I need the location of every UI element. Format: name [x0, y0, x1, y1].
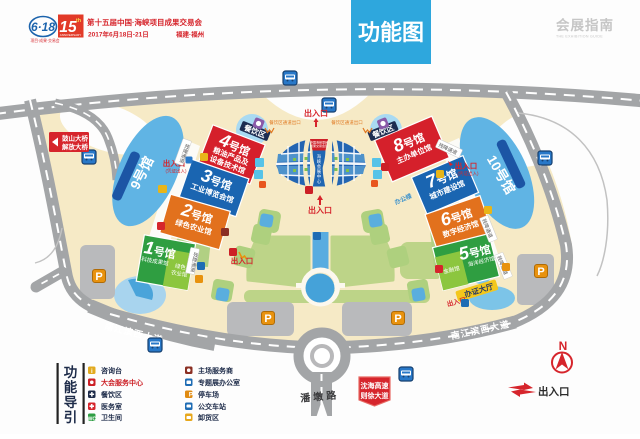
- svg-text:心: 心: [317, 178, 322, 184]
- svg-text:能: 能: [64, 379, 78, 395]
- svg-text:大会服务中心: 大会服务中心: [101, 378, 143, 387]
- svg-text:成果交易会馆: 成果交易会馆: [310, 143, 328, 148]
- svg-text:专题展办公室: 专题展办公室: [198, 378, 240, 387]
- svg-text:餐饮区通道出口: 餐饮区通道出口: [269, 119, 301, 126]
- svg-text:出入口: 出入口: [304, 108, 328, 118]
- svg-text:咨询台: 咨询台: [101, 366, 122, 375]
- svg-text:6·18: 6·18: [31, 20, 55, 34]
- svg-text:项目·成果·交易会: 项目·成果·交易会: [30, 38, 59, 43]
- svg-text:餐饮区通道出口: 餐饮区通道出口: [331, 119, 363, 126]
- svg-text:出入口: 出入口: [231, 256, 254, 266]
- svg-text:导: 导: [64, 395, 78, 410]
- svg-text:WC: WC: [88, 417, 97, 423]
- svg-text:则徐大道: 则徐大道: [361, 391, 389, 400]
- svg-text:出入口: 出入口: [455, 161, 478, 171]
- svg-text:解放大桥: 解放大桥: [62, 142, 89, 151]
- svg-text:餐饮区: 餐饮区: [100, 390, 122, 399]
- svg-text:卸货区: 卸货区: [198, 413, 219, 422]
- svg-text:福建·福州: 福建·福州: [175, 30, 204, 39]
- svg-text:沈海高速: 沈海高速: [361, 381, 389, 390]
- svg-text:功能图: 功能图: [358, 20, 424, 45]
- svg-text:出入口: 出入口: [308, 205, 332, 215]
- svg-text:功: 功: [64, 365, 78, 380]
- svg-text:停车场: 停车场: [198, 390, 219, 399]
- svg-text:(凭证出入): (凭证出入): [458, 170, 479, 177]
- svg-text:公交车站: 公交车站: [198, 402, 226, 411]
- svg-text:第十五届中国·海峡项目成果交易会: 第十五届中国·海峡项目成果交易会: [87, 17, 202, 27]
- svg-text:引: 引: [64, 410, 78, 425]
- svg-text:出入口: 出入口: [538, 385, 570, 398]
- svg-text:(凭证出入): (凭证出入): [166, 168, 187, 175]
- svg-text:N: N: [559, 339, 568, 353]
- svg-text:THE EXHIBITION GUIDE: THE EXHIBITION GUIDE: [556, 35, 603, 39]
- svg-text:主场服务商: 主场服务商: [198, 366, 233, 375]
- svg-text:th: th: [76, 18, 82, 24]
- svg-text:会展指南: 会展指南: [556, 17, 614, 33]
- svg-text:鼓山大桥: 鼓山大桥: [62, 134, 89, 143]
- svg-text:ANNIVERSARY: ANNIVERSARY: [60, 33, 81, 37]
- svg-text:医务室: 医务室: [101, 402, 122, 411]
- svg-text:卫生间: 卫生间: [101, 413, 122, 422]
- svg-text:P: P: [189, 392, 194, 399]
- svg-text:2017年6月18日-21日: 2017年6月18日-21日: [88, 30, 149, 39]
